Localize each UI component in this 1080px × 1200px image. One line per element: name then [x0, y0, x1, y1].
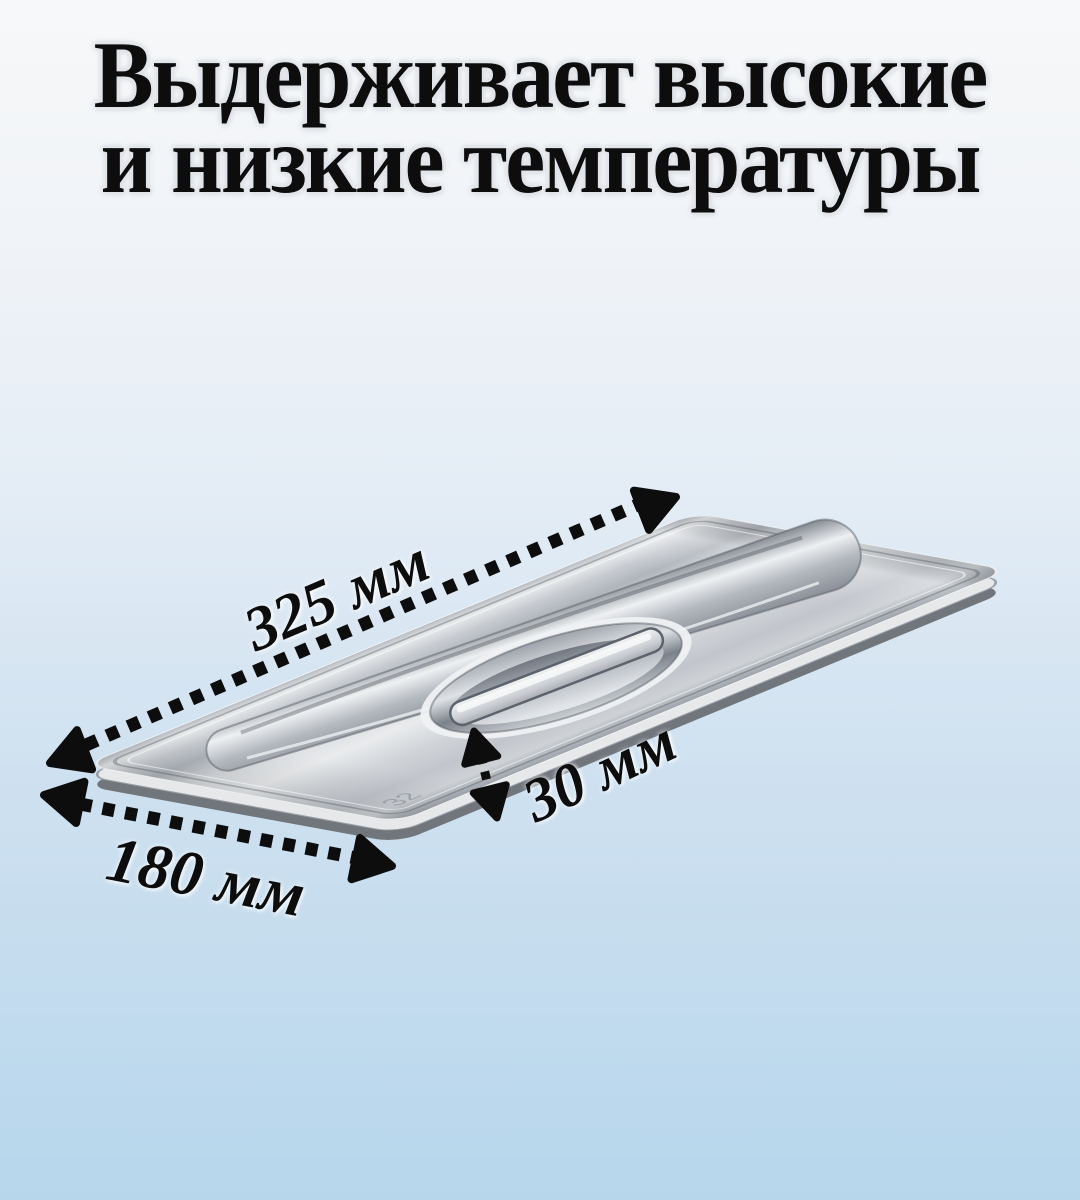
product-scene: 32	[0, 0, 1080, 1200]
